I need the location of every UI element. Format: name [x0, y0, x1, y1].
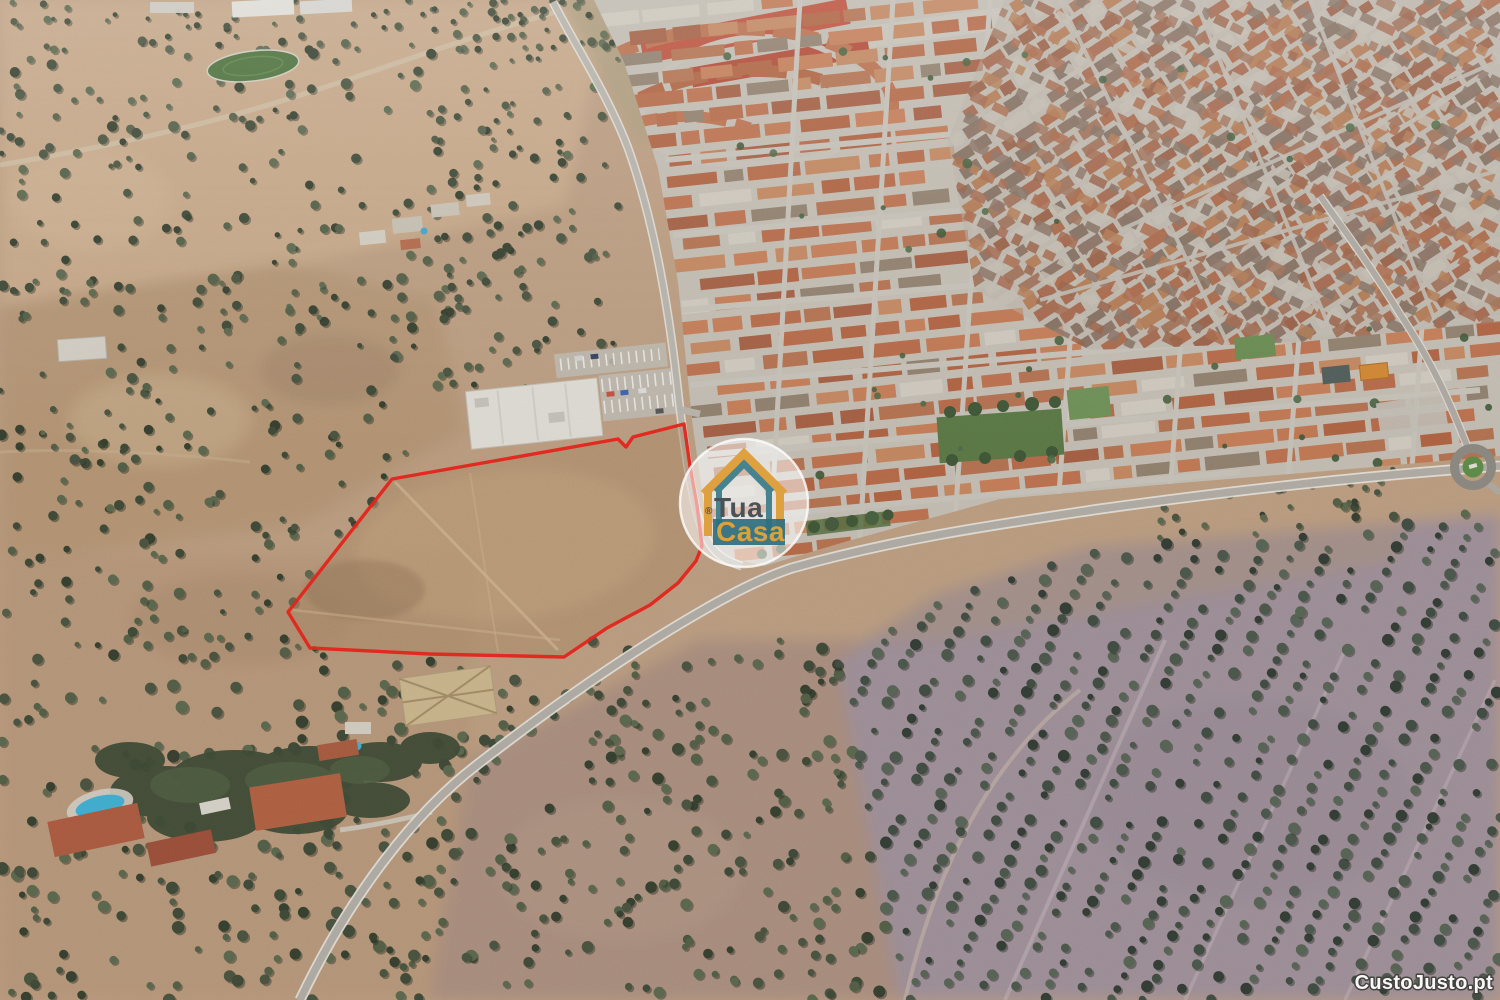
brand-text-casa: Casa	[716, 516, 785, 547]
satellite-map: ® Tua Casa CustoJusto.pt	[0, 0, 1500, 1000]
tua-casa-logo: ® Tua Casa	[680, 439, 808, 567]
aerial-photo: ® Tua Casa CustoJusto.pt	[0, 0, 1500, 1000]
custojusto-watermark: CustoJusto.pt	[1355, 972, 1493, 994]
registered-mark: ®	[705, 506, 713, 517]
